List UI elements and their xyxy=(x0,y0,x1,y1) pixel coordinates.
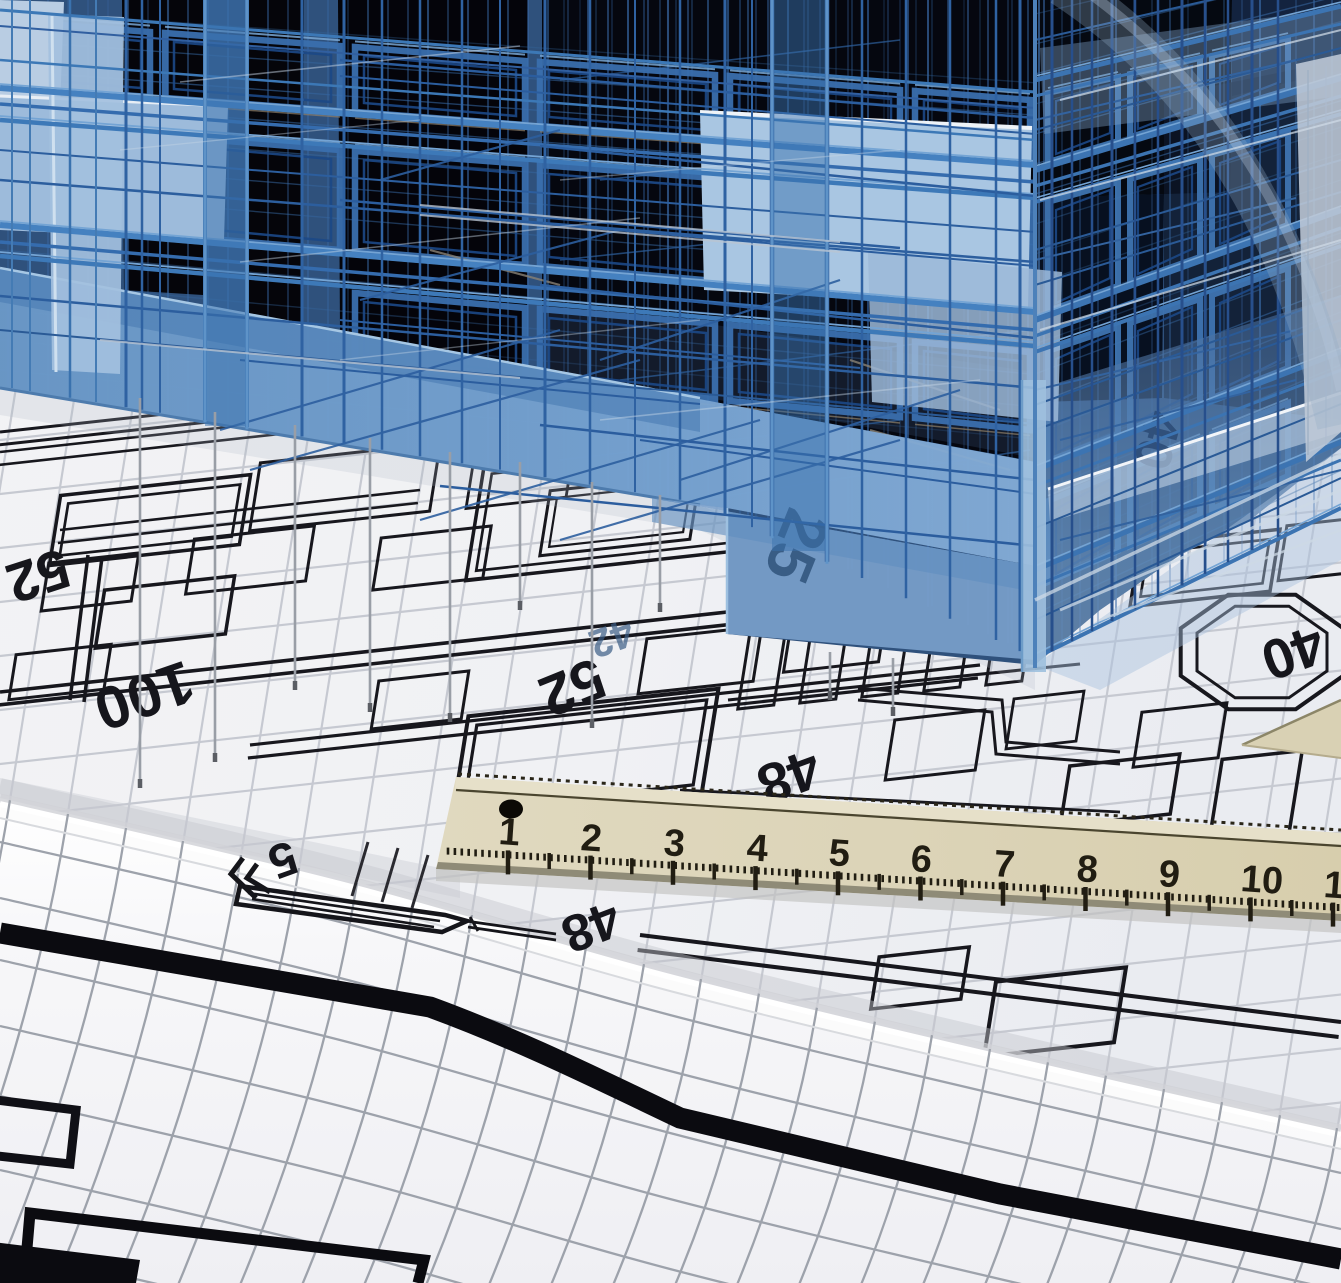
svg-text:5: 5 xyxy=(827,832,851,875)
svg-text:11: 11 xyxy=(1322,864,1341,909)
svg-text:10: 10 xyxy=(1239,858,1284,903)
svg-text:1: 1 xyxy=(497,811,521,854)
svg-text:8: 8 xyxy=(1075,848,1099,891)
svg-text:6: 6 xyxy=(909,838,933,881)
svg-text:3: 3 xyxy=(662,822,686,865)
svg-text:4: 4 xyxy=(745,827,769,870)
svg-text:9: 9 xyxy=(1157,853,1181,896)
svg-text:7: 7 xyxy=(992,843,1016,886)
svg-text:2: 2 xyxy=(579,817,603,860)
